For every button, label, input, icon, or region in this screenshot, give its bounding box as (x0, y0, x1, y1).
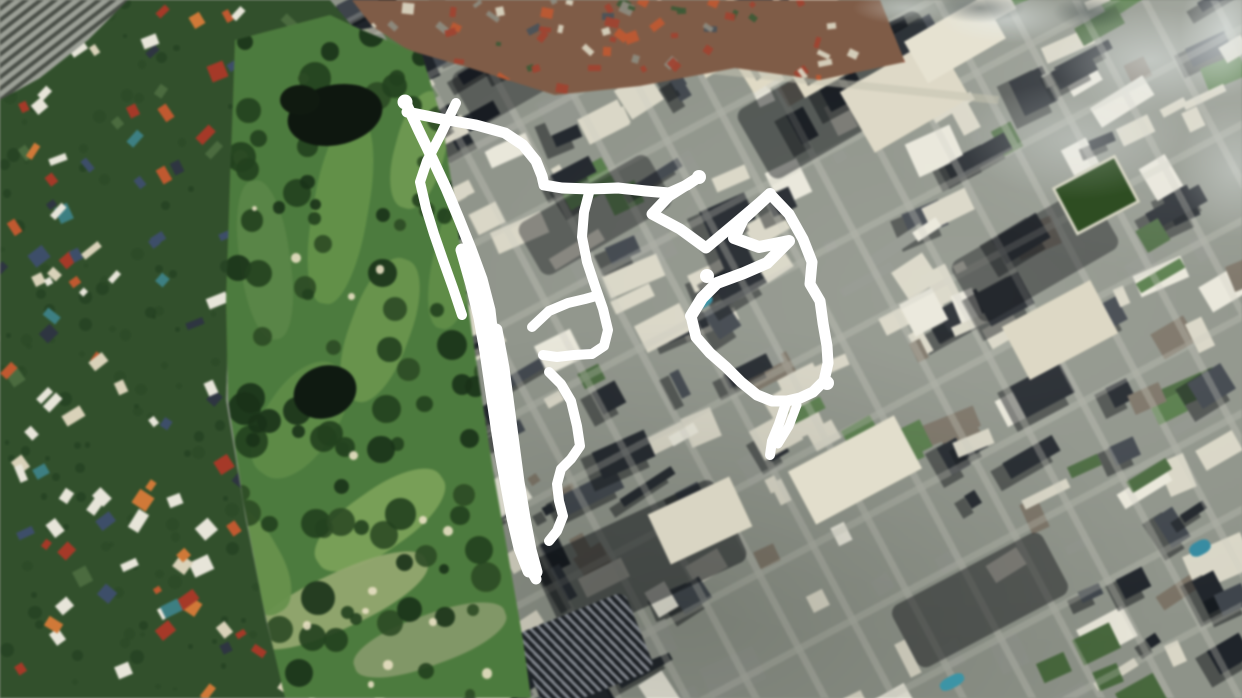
gps-track-segment-descent-into-loop (543, 189, 608, 357)
gps-track-segment-small-loop-up (532, 296, 596, 327)
gps-track-segment-loop-bottom-arc (691, 316, 787, 401)
gps-track-segment-right-of-bundle-wiggle (549, 372, 580, 541)
map-viewport[interactable] (0, 0, 1242, 698)
gps-track-segment-loop-right-edge (770, 194, 828, 401)
gps-route-overlay (0, 0, 1242, 698)
gps-track-node (700, 269, 714, 283)
gps-track-node (692, 170, 706, 184)
gps-track-node (398, 95, 413, 110)
gps-track-node (820, 376, 834, 390)
gps-track-segment-top-curve-horizontal (407, 112, 699, 193)
